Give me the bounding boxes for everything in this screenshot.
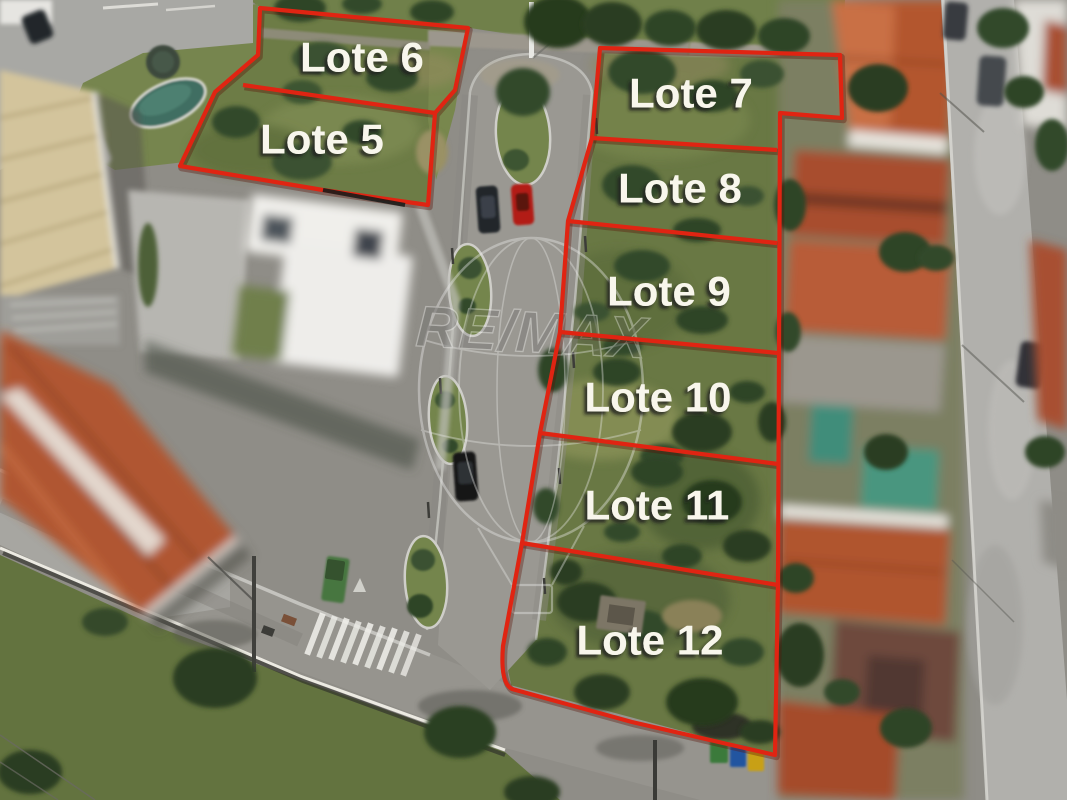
lot-label-lote-9: Lote 9 — [607, 268, 731, 315]
lot-label-lote-12: Lote 12 — [576, 617, 723, 664]
roof-panel — [352, 228, 383, 259]
parked-car-dark — [475, 185, 500, 233]
utility-pole — [653, 740, 657, 800]
lot-label-lote-7: Lote 7 — [629, 70, 753, 117]
teal-roof — [809, 404, 854, 464]
lot-label-lote-10: Lote 10 — [584, 374, 731, 421]
hedge — [138, 223, 158, 307]
parked-car — [942, 1, 968, 41]
aerial-photo: RE/MAX Lote 5Lote 6Lote 7Lote 8Lote 9Lot… — [0, 0, 1067, 800]
courtyard-garden — [232, 285, 290, 361]
house-roof — [778, 700, 900, 800]
background-layer — [0, 0, 1067, 800]
tree — [407, 594, 433, 618]
house-roof — [1042, 20, 1067, 95]
tree — [458, 257, 482, 279]
lot-label-lote-8: Lote 8 — [618, 165, 742, 212]
parked-car — [976, 55, 1006, 107]
tree — [82, 608, 128, 636]
parked-car-red — [511, 183, 535, 225]
utility-pole — [252, 556, 256, 672]
tree — [173, 648, 257, 708]
tree — [411, 549, 435, 571]
lot-label-lote-11: Lote 11 — [585, 482, 730, 529]
tree — [424, 706, 496, 758]
roof-panel — [261, 214, 294, 243]
lot-label-lote-5: Lote 5 — [260, 116, 384, 163]
lot-label-lote-6: Lote 6 — [300, 34, 424, 81]
screenshot-root: RE/MAX Lote 5Lote 6Lote 7Lote 8Lote 9Lot… — [0, 0, 1067, 800]
tree — [496, 68, 550, 116]
tree — [503, 149, 529, 171]
parked-car-black — [452, 451, 478, 501]
